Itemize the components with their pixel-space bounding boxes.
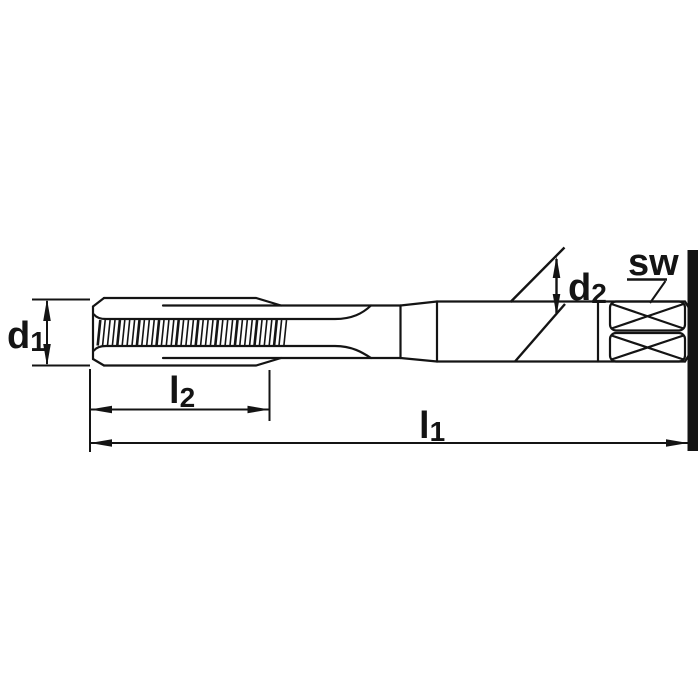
thread-hatch-line (269, 320, 272, 346)
thread-hatch-line (206, 320, 209, 346)
thread-hatch-line (166, 320, 169, 346)
thread-hatch-line (98, 320, 101, 346)
thread-crest-top (104, 298, 281, 306)
thread-hatch-line (152, 320, 155, 346)
thread-hatch-line (103, 320, 106, 346)
thread-hatch-line (147, 320, 150, 346)
thread-hatch-line (157, 320, 160, 346)
thread-hatch-line (127, 320, 130, 346)
sw-label: sw (628, 242, 679, 284)
thread-hatch-line (117, 320, 120, 346)
thread-root-top (94, 306, 371, 320)
label-sw-group: sw (627, 242, 679, 303)
sw-leader-line (650, 281, 666, 303)
front-bottom-chamfer (93, 359, 104, 366)
l2-arrowhead-right (248, 406, 270, 413)
square-drive-end (610, 302, 685, 362)
thread-hatch-line (210, 320, 213, 346)
thread-hatch-line (250, 320, 253, 346)
d1-arrowhead-up (43, 299, 51, 321)
thread-hatch-line (284, 320, 287, 346)
thread-crest-bottom (104, 358, 281, 366)
square-cross-upper (612, 304, 684, 329)
thread-hatch-line (142, 320, 145, 346)
l2-arrowhead-left (90, 406, 112, 413)
thread-hatch-line (112, 320, 115, 346)
thread-hatching (98, 320, 287, 346)
dimension-l2: l2 (90, 369, 270, 452)
front-top-chamfer (93, 298, 104, 307)
cone-bottom (401, 358, 438, 362)
thread-hatch-line (279, 320, 282, 346)
thread-hatch-line (181, 320, 184, 346)
thread-hatch-line (161, 320, 164, 346)
l1-arrowhead-left (90, 439, 112, 446)
d1-label: d1 (7, 315, 46, 357)
l2-label: l2 (169, 370, 195, 413)
l1-arrowhead-right (666, 439, 688, 446)
thread-hatch-line (274, 320, 277, 346)
thread-hatch-line (215, 320, 218, 346)
thread-hatch-line (259, 320, 262, 346)
thread-hatch-line (132, 320, 135, 346)
dimension-d2: d2 (511, 248, 607, 362)
square-cross-lower (612, 336, 684, 360)
thread-hatch-line (196, 320, 199, 346)
end-stop-bar (688, 250, 699, 451)
thread-hatch-line (186, 320, 189, 346)
dimension-d1: d1 (7, 299, 90, 366)
cone-top (401, 302, 438, 306)
thread-hatch-line (245, 320, 248, 346)
thread-hatch-line (176, 320, 179, 346)
thread-hatch-line (264, 320, 267, 346)
d2-label: d2 (568, 267, 607, 309)
thread-hatch-line (201, 320, 204, 346)
thread-hatch-line (230, 320, 233, 346)
thread-hatch-line (137, 320, 140, 346)
thread-hatch-line (108, 320, 111, 346)
l1-label: l1 (419, 405, 445, 447)
thread-hatch-line (122, 320, 125, 346)
thread-hatch-line (225, 320, 228, 346)
tap-technical-drawing: d1 d2 sw l2 l1 (0, 0, 700, 700)
thread-root-bottom (94, 346, 371, 358)
tap-drawing-canvas: d1 d2 sw l2 l1 (0, 0, 700, 700)
thread-hatch-line (191, 320, 194, 346)
thread-hatch-line (171, 320, 174, 346)
thread-hatch-line (220, 320, 223, 346)
thread-hatch-line (235, 320, 238, 346)
thread-hatch-line (255, 320, 258, 346)
thread-hatch-line (240, 320, 243, 346)
